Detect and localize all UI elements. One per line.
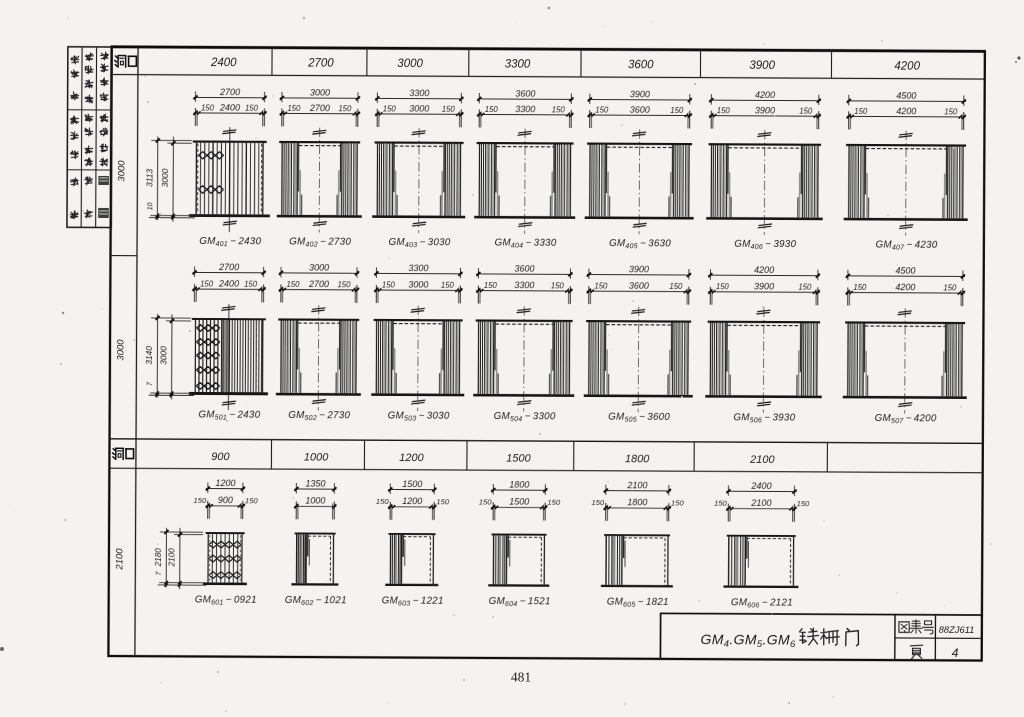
svg-text:10: 10 [147,202,154,210]
svg-text:GM402 − 2730: GM402 − 2730 [289,237,351,249]
svg-text:3600: 3600 [630,105,650,115]
svg-text:2180: 2180 [154,548,163,568]
svg-text:150: 150 [671,498,684,507]
svg-text:4200: 4200 [894,61,920,73]
svg-text:1800: 1800 [509,480,529,490]
svg-text:GM407 − 4230: GM407 − 4230 [876,240,938,252]
svg-text:3900: 3900 [629,264,649,274]
svg-text:2100: 2100 [114,548,125,571]
svg-text:GM406 − 3930: GM406 − 3930 [734,239,796,251]
svg-text:150: 150 [854,107,868,116]
svg-text:3000: 3000 [397,58,423,70]
svg-text:150: 150 [382,280,396,289]
svg-text:GM506 − 3930: GM506 − 3930 [733,412,795,424]
svg-text:1500: 1500 [402,479,422,489]
svg-text:4200: 4200 [754,265,774,275]
svg-text:4: 4 [952,646,959,660]
svg-text:1200: 1200 [215,478,235,488]
svg-text:150: 150 [193,496,206,505]
svg-text:3600: 3600 [628,59,654,71]
svg-text:150: 150 [245,104,259,113]
svg-text:150: 150 [441,281,455,290]
svg-text:GM606 − 2121: GM606 − 2121 [731,597,793,609]
svg-text:GM605 − 1821: GM605 − 1821 [607,597,669,609]
svg-text:150: 150 [484,281,498,290]
svg-text:3900: 3900 [749,60,775,72]
svg-text:900: 900 [211,451,230,463]
svg-text:3000: 3000 [159,346,169,365]
svg-text:4500: 4500 [896,90,916,100]
svg-text:3140: 3140 [144,346,154,365]
svg-text:4200: 4200 [895,282,915,292]
svg-text:150: 150 [245,496,258,505]
svg-text:3600: 3600 [515,88,535,98]
svg-text:150: 150 [337,280,351,289]
svg-text:3000: 3000 [309,262,329,272]
svg-text:1350: 1350 [305,479,325,489]
svg-text:GM601 − 0921: GM601 − 0921 [195,594,257,606]
svg-text:150: 150 [798,283,812,292]
svg-text:150: 150 [376,497,389,506]
svg-text:3300: 3300 [408,263,428,273]
svg-text:150: 150 [485,105,499,114]
svg-text:150: 150 [244,280,258,289]
svg-text:GM507 − 4200: GM507 − 4200 [875,413,937,425]
svg-text:2400: 2400 [218,279,239,289]
svg-text:GM602 − 1021: GM602 − 1021 [285,595,347,607]
svg-text:GM505 − 3600: GM505 − 3600 [608,412,670,424]
svg-text:GM504 − 3300: GM504 − 3300 [494,411,556,423]
svg-text:GM502 − 2730: GM502 − 2730 [288,410,350,422]
svg-text:3113: 3113 [144,169,154,187]
svg-text:150: 150 [442,105,456,114]
svg-text:3300: 3300 [505,58,531,70]
svg-text:3600: 3600 [514,263,534,273]
svg-text:GM401 − 2430: GM401 − 2430 [199,236,261,248]
svg-text:1200: 1200 [399,452,424,464]
svg-text:3000: 3000 [116,160,127,182]
svg-text:2700: 2700 [219,87,240,97]
svg-text:3600: 3600 [629,281,649,291]
svg-text:150: 150 [436,497,449,506]
svg-text:3900: 3900 [754,281,774,291]
svg-text:150: 150 [200,279,214,288]
svg-text:150: 150 [595,106,609,115]
svg-text:150: 150 [383,105,397,114]
svg-text:1000: 1000 [304,451,329,463]
svg-text:4200: 4200 [755,90,775,100]
svg-text:2400: 2400 [750,481,771,491]
svg-text:GM603 − 1221: GM603 − 1221 [382,595,444,607]
svg-text:1800: 1800 [625,453,650,465]
svg-text:1500: 1500 [509,497,529,507]
svg-text:150: 150 [479,497,492,506]
svg-text:1000: 1000 [305,496,325,506]
svg-text:150: 150 [287,104,301,113]
svg-text:150: 150 [670,106,684,115]
svg-text:4500: 4500 [895,265,915,275]
svg-text:2700: 2700 [218,262,239,272]
svg-text:150: 150 [943,283,957,292]
svg-text:481: 481 [511,670,531,685]
svg-text:150: 150 [797,499,810,508]
svg-text:150: 150 [799,107,813,116]
svg-text:150: 150 [594,282,608,291]
svg-text:3300: 3300 [515,104,535,114]
svg-text:3000: 3000 [310,87,330,97]
svg-text:2100: 2100 [626,480,647,490]
svg-text:GM403 − 3030: GM403 − 3030 [389,237,451,249]
svg-text:4200: 4200 [896,106,916,116]
svg-text:3300: 3300 [409,88,429,98]
svg-text:3300: 3300 [514,280,534,290]
svg-text:1200: 1200 [402,496,422,506]
svg-text:150: 150 [286,280,300,289]
svg-text:150: 150 [591,498,604,507]
svg-text:3000: 3000 [409,104,429,114]
svg-text:2700: 2700 [307,57,334,69]
svg-text:GM405 − 3630: GM405 − 3630 [609,238,671,250]
svg-text:150: 150 [714,499,727,508]
svg-text:1500: 1500 [506,452,531,464]
svg-text:150: 150 [944,108,958,117]
svg-text:150: 150 [201,104,215,113]
svg-text:2100: 2100 [168,548,177,568]
svg-text:GM604 − 1521: GM604 − 1521 [489,596,551,608]
svg-text:3900: 3900 [755,106,775,116]
svg-text:150: 150 [338,104,352,113]
svg-text:1800: 1800 [627,497,647,507]
svg-text:150: 150 [551,281,565,290]
svg-text:3000: 3000 [160,168,170,187]
svg-text:2100: 2100 [750,498,771,508]
svg-text:900: 900 [218,495,233,505]
svg-text:3900: 3900 [630,89,650,99]
svg-text:2400: 2400 [219,103,240,113]
svg-text:150: 150 [547,498,560,507]
svg-text:2700: 2700 [309,103,330,113]
svg-text:2400: 2400 [210,57,237,69]
svg-text:150: 150 [717,106,731,115]
svg-text:2100: 2100 [749,454,775,466]
svg-text:150: 150 [552,106,566,115]
svg-text:GM503 − 3030: GM503 − 3030 [388,410,450,422]
svg-text:150: 150 [669,282,683,291]
svg-text:2700: 2700 [308,279,329,289]
svg-text:GM404 − 3330: GM404 − 3330 [495,238,557,250]
svg-text:150: 150 [853,283,867,292]
svg-text:88ZJ611: 88ZJ611 [939,624,975,635]
svg-text:3000: 3000 [115,339,126,361]
svg-text:3000: 3000 [408,280,428,290]
svg-text:GM501 − 2430: GM501 − 2430 [198,409,260,421]
